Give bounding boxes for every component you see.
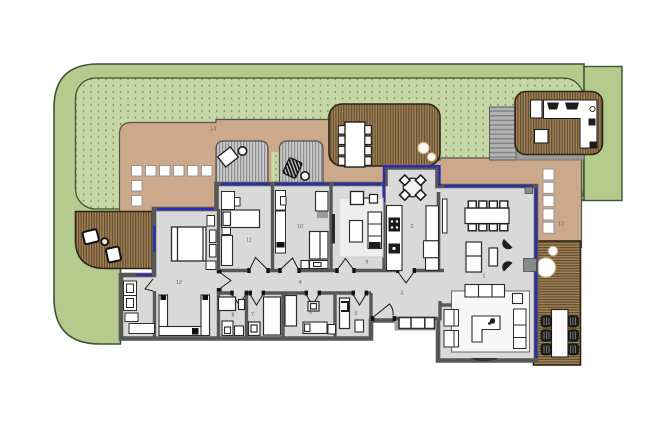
- svg-text:12: 12: [176, 280, 182, 286]
- svg-text:4: 4: [299, 280, 302, 286]
- svg-text:9: 9: [366, 260, 369, 266]
- svg-text:10: 10: [297, 224, 303, 230]
- svg-text:8: 8: [232, 313, 235, 319]
- svg-text:11: 11: [246, 238, 251, 244]
- svg-text:5: 5: [355, 311, 358, 317]
- svg-text:14: 14: [210, 127, 217, 133]
- svg-text:7: 7: [251, 312, 254, 318]
- svg-text:13: 13: [558, 222, 565, 228]
- svg-text:6: 6: [309, 310, 312, 316]
- svg-text:2: 2: [411, 224, 414, 230]
- svg-text:1: 1: [483, 274, 486, 280]
- svg-text:3: 3: [401, 291, 404, 297]
